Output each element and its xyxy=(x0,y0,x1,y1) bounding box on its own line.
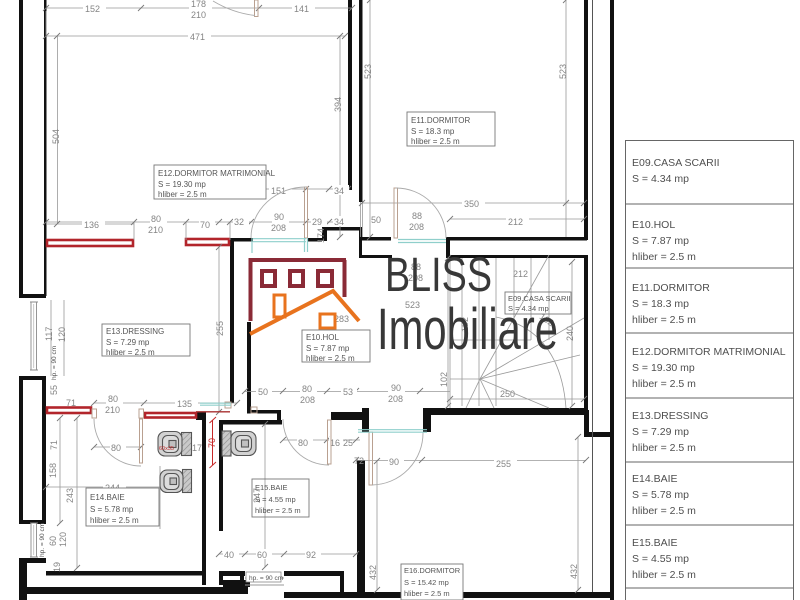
svg-text:90: 90 xyxy=(391,383,401,393)
svg-text:523: 523 xyxy=(363,64,373,79)
svg-text:152: 152 xyxy=(85,4,100,14)
svg-text:255: 255 xyxy=(496,459,511,469)
svg-text:80: 80 xyxy=(108,394,118,404)
svg-text:E11.DORMITOR: E11.DORMITOR xyxy=(632,282,710,294)
svg-text:S = 15.42 mp: S = 15.42 mp xyxy=(404,578,449,587)
svg-text:80: 80 xyxy=(111,443,121,453)
svg-text:hp. = 90 cm: hp. = 90 cm xyxy=(39,523,46,557)
svg-text:S = 19.30 mp: S = 19.30 mp xyxy=(632,362,695,374)
svg-text:hliber = 2.5 m: hliber = 2.5 m xyxy=(90,516,139,525)
svg-text:350: 350 xyxy=(464,199,479,209)
svg-text:71: 71 xyxy=(66,398,76,408)
svg-text:174: 174 xyxy=(316,228,326,243)
svg-text:hliber = 2.5 m: hliber = 2.5 m xyxy=(404,589,450,598)
svg-text:208: 208 xyxy=(388,394,403,404)
svg-text:88: 88 xyxy=(412,211,422,221)
svg-text:hliber = 2.5 m: hliber = 2.5 m xyxy=(106,348,155,357)
svg-text:E15.BAIE: E15.BAIE xyxy=(632,537,678,549)
svg-text:50: 50 xyxy=(371,215,381,225)
svg-text:40: 40 xyxy=(224,550,234,560)
svg-text:S = 18.3 mp: S = 18.3 mp xyxy=(411,127,455,136)
svg-text:210: 210 xyxy=(148,225,163,235)
svg-text:E10.HOL: E10.HOL xyxy=(632,219,675,231)
svg-text:53: 53 xyxy=(343,387,353,397)
svg-text:71: 71 xyxy=(49,440,59,450)
svg-text:S = 19.30 mp: S = 19.30 mp xyxy=(158,180,206,189)
svg-text:504: 504 xyxy=(51,129,61,144)
svg-text:32: 32 xyxy=(234,217,244,227)
svg-text:E12.DORMITOR MATRIMONIAL: E12.DORMITOR MATRIMONIAL xyxy=(632,346,786,358)
svg-text:S = 4.34 mp: S = 4.34 mp xyxy=(508,304,549,313)
svg-text:208: 208 xyxy=(300,395,315,405)
svg-text:60: 60 xyxy=(48,536,58,546)
svg-text:E15.BAIE: E15.BAIE xyxy=(255,483,288,492)
svg-text:E09.CASA SCARII: E09.CASA SCARII xyxy=(632,157,720,169)
svg-text:E14.BAIE: E14.BAIE xyxy=(90,493,125,502)
svg-text:92: 92 xyxy=(306,550,316,560)
svg-text:158: 158 xyxy=(48,463,58,478)
svg-text:102: 102 xyxy=(439,372,449,387)
svg-text:70: 70 xyxy=(200,220,210,230)
svg-text:hliber = 2.5 m: hliber = 2.5 m xyxy=(632,314,696,326)
svg-text:255: 255 xyxy=(215,321,225,336)
svg-text:55: 55 xyxy=(49,385,59,395)
svg-text:E16.DORMITOR: E16.DORMITOR xyxy=(404,566,461,575)
svg-text:S = 4.34 mp: S = 4.34 mp xyxy=(632,173,689,185)
svg-text:29: 29 xyxy=(312,217,322,227)
svg-text:210: 210 xyxy=(191,10,206,20)
svg-text:E14.BAIE: E14.BAIE xyxy=(632,473,678,485)
svg-text:90: 90 xyxy=(389,457,399,467)
svg-text:432: 432 xyxy=(569,564,579,579)
svg-text:120: 120 xyxy=(58,532,68,547)
svg-text:hliber = 2.5 m: hliber = 2.5 m xyxy=(632,251,696,263)
svg-text:E09.CASA SCARII: E09.CASA SCARII xyxy=(508,294,571,303)
svg-text:S = 7.87 mp: S = 7.87 mp xyxy=(632,235,689,247)
svg-text:S = 7.29 mp: S = 7.29 mp xyxy=(632,426,689,438)
svg-text:135: 135 xyxy=(177,399,192,409)
svg-text:117: 117 xyxy=(44,327,54,341)
svg-text:hliber = 2.5 m: hliber = 2.5 m xyxy=(255,506,301,515)
svg-text:E13.DRESSING: E13.DRESSING xyxy=(632,410,708,422)
svg-text:120: 120 xyxy=(57,327,67,342)
svg-text:80: 80 xyxy=(151,214,161,224)
svg-text:hp. = 90 cm: hp. = 90 cm xyxy=(51,346,58,380)
svg-text:210: 210 xyxy=(105,405,120,415)
svg-text:hliber = 2.5 m: hliber = 2.5 m xyxy=(632,505,696,517)
svg-text:S = 4.55 mp: S = 4.55 mp xyxy=(255,495,296,504)
svg-text:208: 208 xyxy=(271,223,286,233)
svg-text:136: 136 xyxy=(84,220,99,230)
svg-text:E11.DORMITOR: E11.DORMITOR xyxy=(411,116,470,125)
svg-text:S = 4.55 mp: S = 4.55 mp xyxy=(632,553,689,565)
svg-text:80: 80 xyxy=(302,384,312,394)
svg-text:hliber = 2.5 m: hliber = 2.5 m xyxy=(411,137,460,146)
svg-text:523: 523 xyxy=(558,64,568,79)
svg-text:72: 72 xyxy=(354,456,364,466)
svg-text:432: 432 xyxy=(368,565,378,580)
svg-text:60x35: 60x35 xyxy=(159,446,174,452)
svg-text:S = 7.87 mp: S = 7.87 mp xyxy=(306,344,350,353)
svg-text:394: 394 xyxy=(333,97,343,112)
svg-text:25: 25 xyxy=(343,438,353,448)
svg-text:60: 60 xyxy=(257,550,267,560)
svg-text:E10.HOL: E10.HOL xyxy=(306,333,339,342)
svg-text:S = 7.29 mp: S = 7.29 mp xyxy=(106,338,150,347)
svg-text:hliber = 2.5 m: hliber = 2.5 m xyxy=(158,190,207,199)
svg-text:hliber = 2.5 m: hliber = 2.5 m xyxy=(306,354,355,363)
svg-text:471: 471 xyxy=(190,32,205,42)
svg-text:178: 178 xyxy=(191,0,206,9)
svg-text:hliber = 2.5 m: hliber = 2.5 m xyxy=(632,569,696,581)
svg-text:S = 5.78 mp: S = 5.78 mp xyxy=(90,505,134,514)
svg-text:16: 16 xyxy=(330,438,340,448)
svg-text:212: 212 xyxy=(513,269,528,279)
svg-text:19: 19 xyxy=(52,562,62,572)
svg-text:17: 17 xyxy=(192,443,202,453)
svg-text:70: 70 xyxy=(207,438,217,448)
svg-text:S = 18.3 mp: S = 18.3 mp xyxy=(632,298,689,310)
svg-text:243: 243 xyxy=(65,488,75,503)
svg-text:34: 34 xyxy=(334,217,344,227)
svg-text:50: 50 xyxy=(258,387,268,397)
svg-text:208: 208 xyxy=(409,222,424,232)
svg-text:212: 212 xyxy=(508,217,523,227)
svg-text:hliber = 2.5 m: hliber = 2.5 m xyxy=(632,442,696,454)
svg-text:80: 80 xyxy=(298,438,308,448)
svg-text:90: 90 xyxy=(274,212,284,222)
svg-text:BLISS: BLISS xyxy=(385,249,492,302)
svg-text:hp. = 90 cm: hp. = 90 cm xyxy=(249,575,283,582)
svg-text:hliber = 2.5 m: hliber = 2.5 m xyxy=(632,378,696,390)
svg-text:34: 34 xyxy=(334,186,344,196)
svg-text:E12.DORMITOR MATRIMONIAL: E12.DORMITOR MATRIMONIAL xyxy=(158,169,276,178)
svg-text:141: 141 xyxy=(294,4,309,14)
svg-text:E13.DRESSING: E13.DRESSING xyxy=(106,327,164,336)
svg-text:S = 5.78 mp: S = 5.78 mp xyxy=(632,489,689,501)
